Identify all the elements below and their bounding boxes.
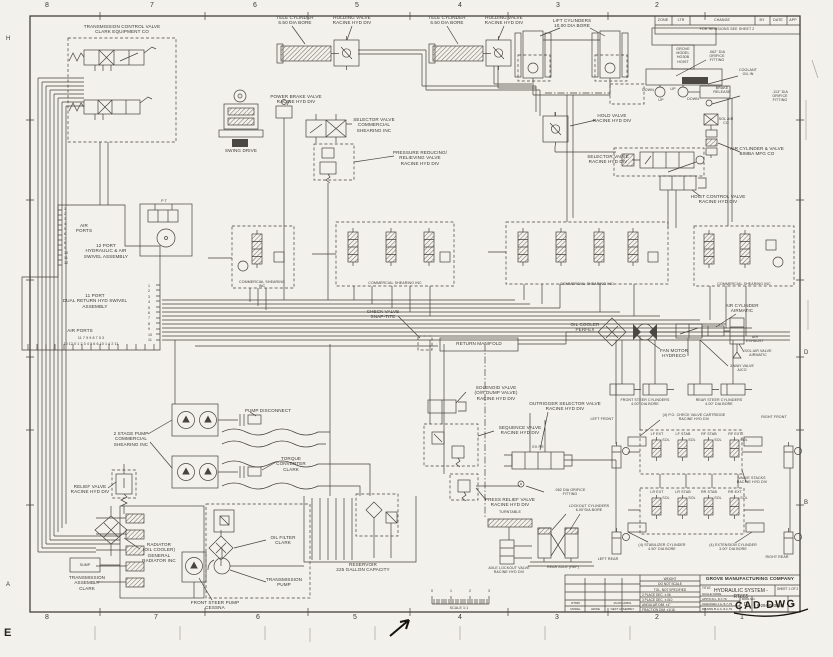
label-front-steer-pump: FRONT STEER PUMP CESSNA [191,600,239,611]
label-turntable: TURNTABLE [499,510,521,514]
label-three-way-valve-aico: 3-WAY VALVE AICO [730,364,754,372]
label-hoist-down-left: DOWN [642,88,654,92]
zone-top-7: 7 [150,2,154,9]
zone-bottom-3: 3 [555,614,559,621]
label-air-ports-top: AIR PORTS [76,223,92,234]
title-block-next-assy-value: 26-054-00561 [606,601,639,605]
zone-top-6: 6 [253,2,257,9]
label-tele-cylinder-1: TELE CYLINDER 6.50 DIA BORE [276,15,313,26]
frame [26,12,804,616]
label-selector-valve-racine: SELECTOR VALVE RACINE HYD DIV [587,154,628,165]
rev-col-date: DATE [773,18,783,22]
label-air-cylinder-bimba: AIR CYLINDER & VALVE BIMBA MFG CO [730,146,784,157]
outrigger-network [564,420,802,554]
label-sol-4: SOL [740,438,748,442]
label-transmission-pump: TRANSMISSION PUMP [266,577,302,588]
label-swivel-12-port: 12 PORT HYDRAULIC & AIR SWIVEL ASSEMBLY [84,243,128,259]
label-hoist-control-valve: HOIST CONTROL VALVE RACINE HYD DIV [691,194,746,205]
label-sump: SUMP [80,563,91,567]
label-pressure-reducing-valve: PRESSURE REDUCING/ RELIEVING VALVE RACIN… [393,150,447,166]
label-lf-ext: LF EXT [651,432,664,436]
label-hold-valve: HOLD VALVE RACINE HYD DIV [593,113,632,124]
title-block-tol-4: FRACTION DIM. ±1/16 [642,608,675,612]
label-front-steer-cylinders: FRONT STEER CYLINDERS 4.00" DIA BORE [621,398,670,406]
label-commercial-shearing-1: COMMERCIAL SHEARING INC [239,280,285,288]
label-outrigger-selector-valve: OUTRIGGER SELECTOR VALVE RACINE HYD DIV [529,401,601,412]
label-orifice-062-bottom: .062 DIA ORIFICE FITTING [555,488,586,496]
label-air-exhaust: AIR EXHAUST [746,335,764,343]
rev-col-zone: ZONE [658,18,668,22]
label-return-manifold: RETURN MANIFOLD [456,341,502,346]
title-block-do-not-scale: DO NOT SCALE [642,582,698,586]
zone-bottom-4: 4 [458,614,462,621]
zone-bottom-2: 2 [655,614,659,621]
title-block-model-value: RT665 [566,601,585,605]
label-sol-6: SOL [688,496,696,500]
schematic-linework [0,0,833,657]
title-block-hdwe-header: HDWE [586,607,605,611]
label-brake-release: BRAKE RELEASE [713,86,730,94]
rev-col-app: APP [789,18,797,22]
label-ruler-0: 0 [431,589,433,593]
label-valve-stacks: VALVE STACKS RACINE HYD DIV [737,476,768,484]
label-right-front: RIGHT FRONT [761,415,787,419]
label-sol-8: SOL [740,496,748,500]
label-rr-ext: RR EXT [728,490,742,494]
label-po-check-valve: (4) P.O. CHECK VALVE CARTRIDGE RACINE HY… [663,413,726,421]
label-sol-3: SOL [714,438,722,442]
label-hoist-down-right: DOWN [687,97,699,101]
label-rear-axle-ref: REAR AXLE (REF) [547,565,579,569]
label-oil-cooler-perfex: OIL COOLER PERFEX [571,322,600,333]
label-tele-cylinder-2: TELE CYLINDER 6.50 DIA BORE [428,15,465,26]
title-block-company: GROVE MANUFACTURING COMPANY [700,576,800,581]
label-holding-valve-2: HOLDING VALVE RACINE HYD DIV [485,15,524,26]
label-orifice-113: .113" DIA ORIFICE FITTING [772,90,788,103]
title-block-tol-3: ANGULAR DIM. ±1° [642,603,671,607]
left-bus [38,78,120,552]
title-block-appd: APP'D R.L. 8-7-79 [702,597,727,601]
title-block-drawn: DRAWN B.A.A. 8-2-79 [702,607,732,611]
label-swivel-11-port: 11 PORT DUAL RETURN HYD SWIVEL ASSEMBLY [63,293,127,309]
label-ruler-2: 2 [469,589,471,593]
label-press-relief-valve: PRESS RELIEF VALVE RACINE HYD DIV [485,497,535,508]
label-selector-valve-commercial: SELECTOR VALVE COMMERCIAL SHEARING INC [353,117,394,133]
zone-top-2: 2 [655,2,659,9]
zone-bottom-7: 7 [154,614,158,621]
label-radiator: RADIATOR (OIL COOLER) GENERAL RADIATOR I… [142,542,176,564]
label-air-cylinder-airmatic: AIR CYLINDER AIRMATIC [725,303,758,314]
rev-note: FOR REVISIONS SEE SHEET 2 [700,27,755,31]
label-sol-1: SOL [662,438,670,442]
rev-col-by: BY [760,18,765,22]
label-pilot-ports: P T [161,199,167,203]
label-sequence-valve: SEQUENCE VALVE RACINE HYD DIV [499,425,542,436]
label-ports-bottom-row1: 11 7 9 9 8 7 5 3 [78,336,104,340]
title-block-scale: SCALE NONE [702,592,721,596]
label-sol-air-co: SOL AIR CO [719,117,734,125]
label-reservoir: RESERVOIR 225 GALLON CAPACITY [336,562,389,573]
label-commercial-shearing-3: COMMERCIAL SHEARING INC [560,282,613,286]
label-rf-stab: RF STAB [701,432,717,436]
label-solenoid-valve: SOLENOID VALVE (O/R DUMP VALVE) RACINE H… [475,385,518,401]
zone-letter-h: H [6,36,10,42]
zone-bottom-5: 5 [353,614,357,621]
label-oil-filter: OIL FILTER CLARK [271,535,296,546]
title-block-tol-2: 3 PLACE DEC. ±.010 [642,598,672,602]
label-stabilizer-cylinder: (4) STABILIZER CYLINDER 4.50" DIA BORE [638,543,685,551]
label-extension-cylinder: (4) EXTENSION CYLINDER 3.00" DIA BORE [709,543,757,551]
label-ports-left: 1 2 3 4 5 6 7 8 9 10 11 12 [64,207,68,266]
label-two-stage-pump: 2 STAGE PUMP COMMERCIAL SHEARING INC [114,431,149,447]
sequence-lockout [424,392,594,566]
label-hoist-up-left: UP [658,98,663,102]
label-rf-ext: RF EXT [728,432,741,436]
label-holding-valve-1: HOLDING VALVE RACINE HYD DIV [333,15,372,26]
label-lr-ext: LR EXT [650,490,663,494]
zone-bottom-6: 6 [256,614,260,621]
label-scale: SCALE 1:1 [450,606,469,610]
cad-dwg-stamp: CAD DWG [735,598,797,612]
label-transmission-control-valve: TRANSMISSION CONTROL VALVE CLARK EQUIPME… [84,24,161,35]
transmission-control-valve-symbol [68,38,176,142]
label-right-rear: RIGHT REAR [765,555,788,559]
label-ruler-1: 1 [450,589,452,593]
title-block-tol-1: 2 PLACE DEC. ±.06 [642,593,671,597]
zone-bottom-8: 8 [45,614,49,621]
label-sol-5: SOL [662,496,670,500]
label-rr-stab: RR STAB [701,490,717,494]
label-sol-air-valve-airmatic: SOL AIR VALVE AIRMATIC [744,349,771,357]
title-block-model-header: MODEL [566,607,585,611]
drawing-sheet: 8 7 6 5 4 3 2 8 7 6 5 4 3 2 1 H A D B ZO… [0,0,833,657]
label-commercial-shearing-4: COMMERCIAL SHEARING INC [717,282,770,286]
zone-top-4: 4 [458,2,462,9]
label-lf-stab: LF STAB [675,432,690,436]
label-hoist-up-right: UP [670,87,675,91]
label-check-valve-snaptite: CHECK VALVE SNAP-TITE [367,309,400,320]
label-fan-motor-hydreco: FAN MOTOR HYDRECO [660,348,688,359]
label-commercial-shearing-2: COMMERCIAL SHEARING INC [368,281,421,285]
label-ruler-3: 3 [488,589,490,593]
label-rear-steer-cylinders: REAR STEER CYLINDERS 4.00" DIA BORE [696,398,743,406]
label-ports-right: 1 2 3 4 5 6 7 8 9 10 11 [148,284,152,343]
label-lockout-cylinders: LOCKOUT CYLINDERS 6.00"DIA BORE [569,504,610,512]
zone-top-5: 5 [355,2,359,9]
label-axle-lockout-valve: AXLE LOCKOUT VALVE RACINE HYD DIV [488,566,529,574]
title-block-sheet: SHEET 1 OF 2 [777,587,798,591]
valve-banks [208,222,794,336]
label-left-front: LEFT FRONT [590,417,613,421]
title-block-next-assy-header: NEXT ASSEMBLY [606,607,639,611]
label-transmission-assembly: TRANSMISSION ASSEMBLY CLARK [69,575,105,591]
zone-letter-a: A [6,582,10,588]
label-grove-hoist: GROVE MODEL HO30B HOIST [676,47,689,64]
scale-ruler [432,596,489,604]
zone-letter-d: D [804,350,808,356]
label-lr-stab: LR STAB [675,490,690,494]
label-selector-ports: EX PR [532,445,543,449]
label-left-rear: LEFT REAR [598,557,619,561]
zone-bottom-1: 1 [740,614,744,621]
rev-col-ltr: LTR [678,18,685,22]
label-swing-drive: SWING DRIVE [225,148,257,153]
label-power-brake-valve: POWER BRAKE VALVE RACINE HYD DIV [270,94,321,105]
label-air-ports-bottom: AIR PORTS [67,328,93,333]
title-block-checked: CHECKED J.A. 8-7-79 [702,602,732,606]
zone-top-8: 8 [45,2,49,9]
label-ports-bottom-row2: 10 12 0 1 2 3 4 5 6 6 10 1 4 2 11 [64,342,119,346]
label-orifice-062-top: .062" DIA ORIFICE FITTING [709,50,725,63]
label-relief-valve: RELIEF VALVE RACINE HYD DIV [71,484,110,495]
label-lift-cylinders: LIFT CYLINDERS 10.00 DIA BORE [553,18,591,29]
label-coolant-oil-in: COOLANT OIL IN [739,68,757,76]
title-block-weight: WEIGHT [642,577,698,581]
zone-top-3: 3 [556,2,560,9]
label-sol-2: SOL [688,438,696,442]
label-pump-disconnect: PUMP DISCONNECT [245,408,291,413]
title-block-tol-header: TOL. NOT SPECIFIED [642,588,698,592]
zone-letter-b: B [804,500,808,506]
label-torque-converter: TORQUE CONVERTER CLARK [276,456,306,472]
rev-col-change: CHANGE [714,18,730,22]
label-sol-7: SOL [714,496,722,500]
corner-mark: E [4,627,11,639]
